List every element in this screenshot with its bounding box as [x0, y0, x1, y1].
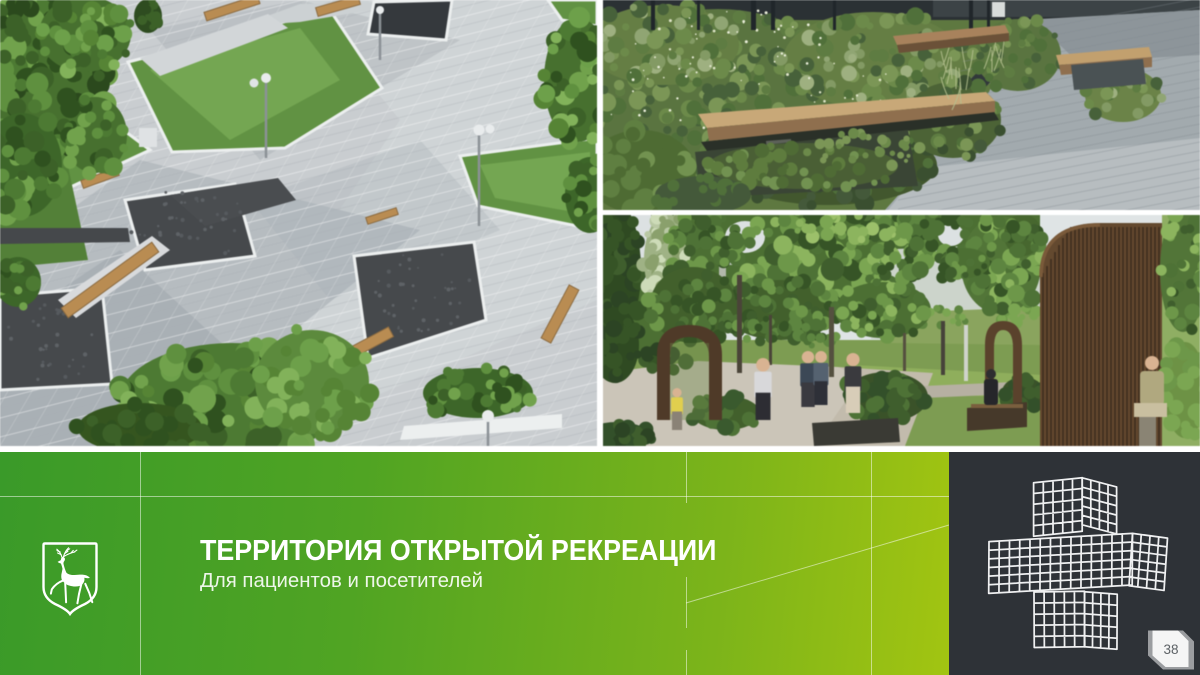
svg-text:38: 38 [1163, 642, 1178, 657]
